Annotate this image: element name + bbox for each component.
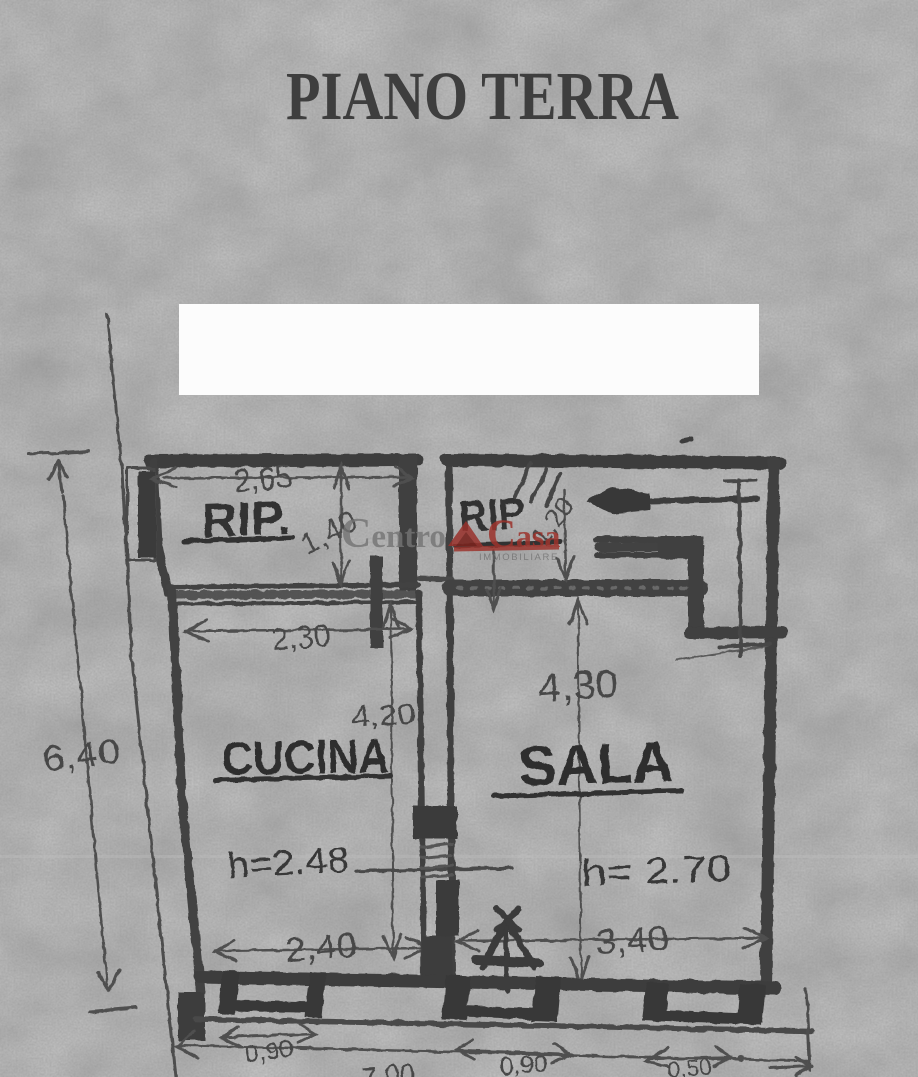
svg-text:PIANO TERRA: PIANO TERRA <box>286 58 679 134</box>
svg-text:IMMOBILIARE: IMMOBILIARE <box>479 552 559 563</box>
svg-text:SALA: SALA <box>517 730 674 799</box>
svg-text:h= 2.70: h= 2.70 <box>581 848 732 894</box>
svg-text:0,90: 0,90 <box>498 1050 549 1077</box>
svg-text:2,30: 2,30 <box>271 617 331 657</box>
svg-text:7,00: 7,00 <box>361 1058 416 1077</box>
svg-text:3,40: 3,40 <box>594 919 669 962</box>
svg-text:4,30: 4,30 <box>537 661 620 710</box>
svg-text:4,20: 4,20 <box>351 698 417 734</box>
svg-text:0,50: 0,50 <box>666 1053 713 1077</box>
svg-text:h=2.48: h=2.48 <box>226 839 350 886</box>
svg-text:2,40: 2,40 <box>283 926 358 970</box>
